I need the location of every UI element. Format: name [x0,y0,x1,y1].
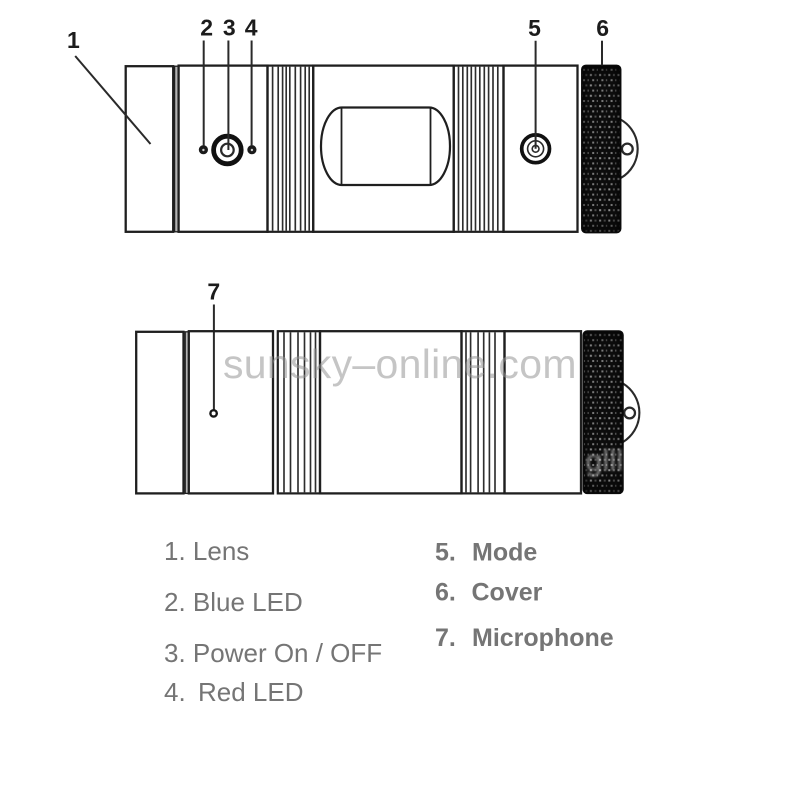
svg-text:Microphone: Microphone [472,624,614,652]
svg-text:Cover: Cover [472,579,543,607]
svg-text:glll: glll [586,445,624,478]
svg-text:3: 3 [223,15,236,41]
svg-text:4.: 4. [164,677,186,707]
svg-text:4: 4 [245,15,258,41]
svg-text:1. Lens: 1. Lens [164,536,249,566]
svg-text:Mode: Mode [472,539,537,567]
svg-text:1: 1 [67,27,80,53]
svg-text:6: 6 [596,15,609,41]
svg-text:7.: 7. [435,624,456,652]
svg-text:7: 7 [207,279,220,305]
svg-text:6.: 6. [435,579,456,607]
svg-text:sunsky–online.com: sunsky–online.com [223,341,577,387]
svg-text:2: 2 [200,15,213,41]
svg-text:3. Power On / OFF: 3. Power On / OFF [164,638,382,668]
svg-text:Red LED: Red LED [198,677,304,707]
svg-text:5.: 5. [435,539,456,567]
svg-text:2. Blue LED: 2. Blue LED [164,587,303,617]
svg-text:5: 5 [528,15,541,41]
